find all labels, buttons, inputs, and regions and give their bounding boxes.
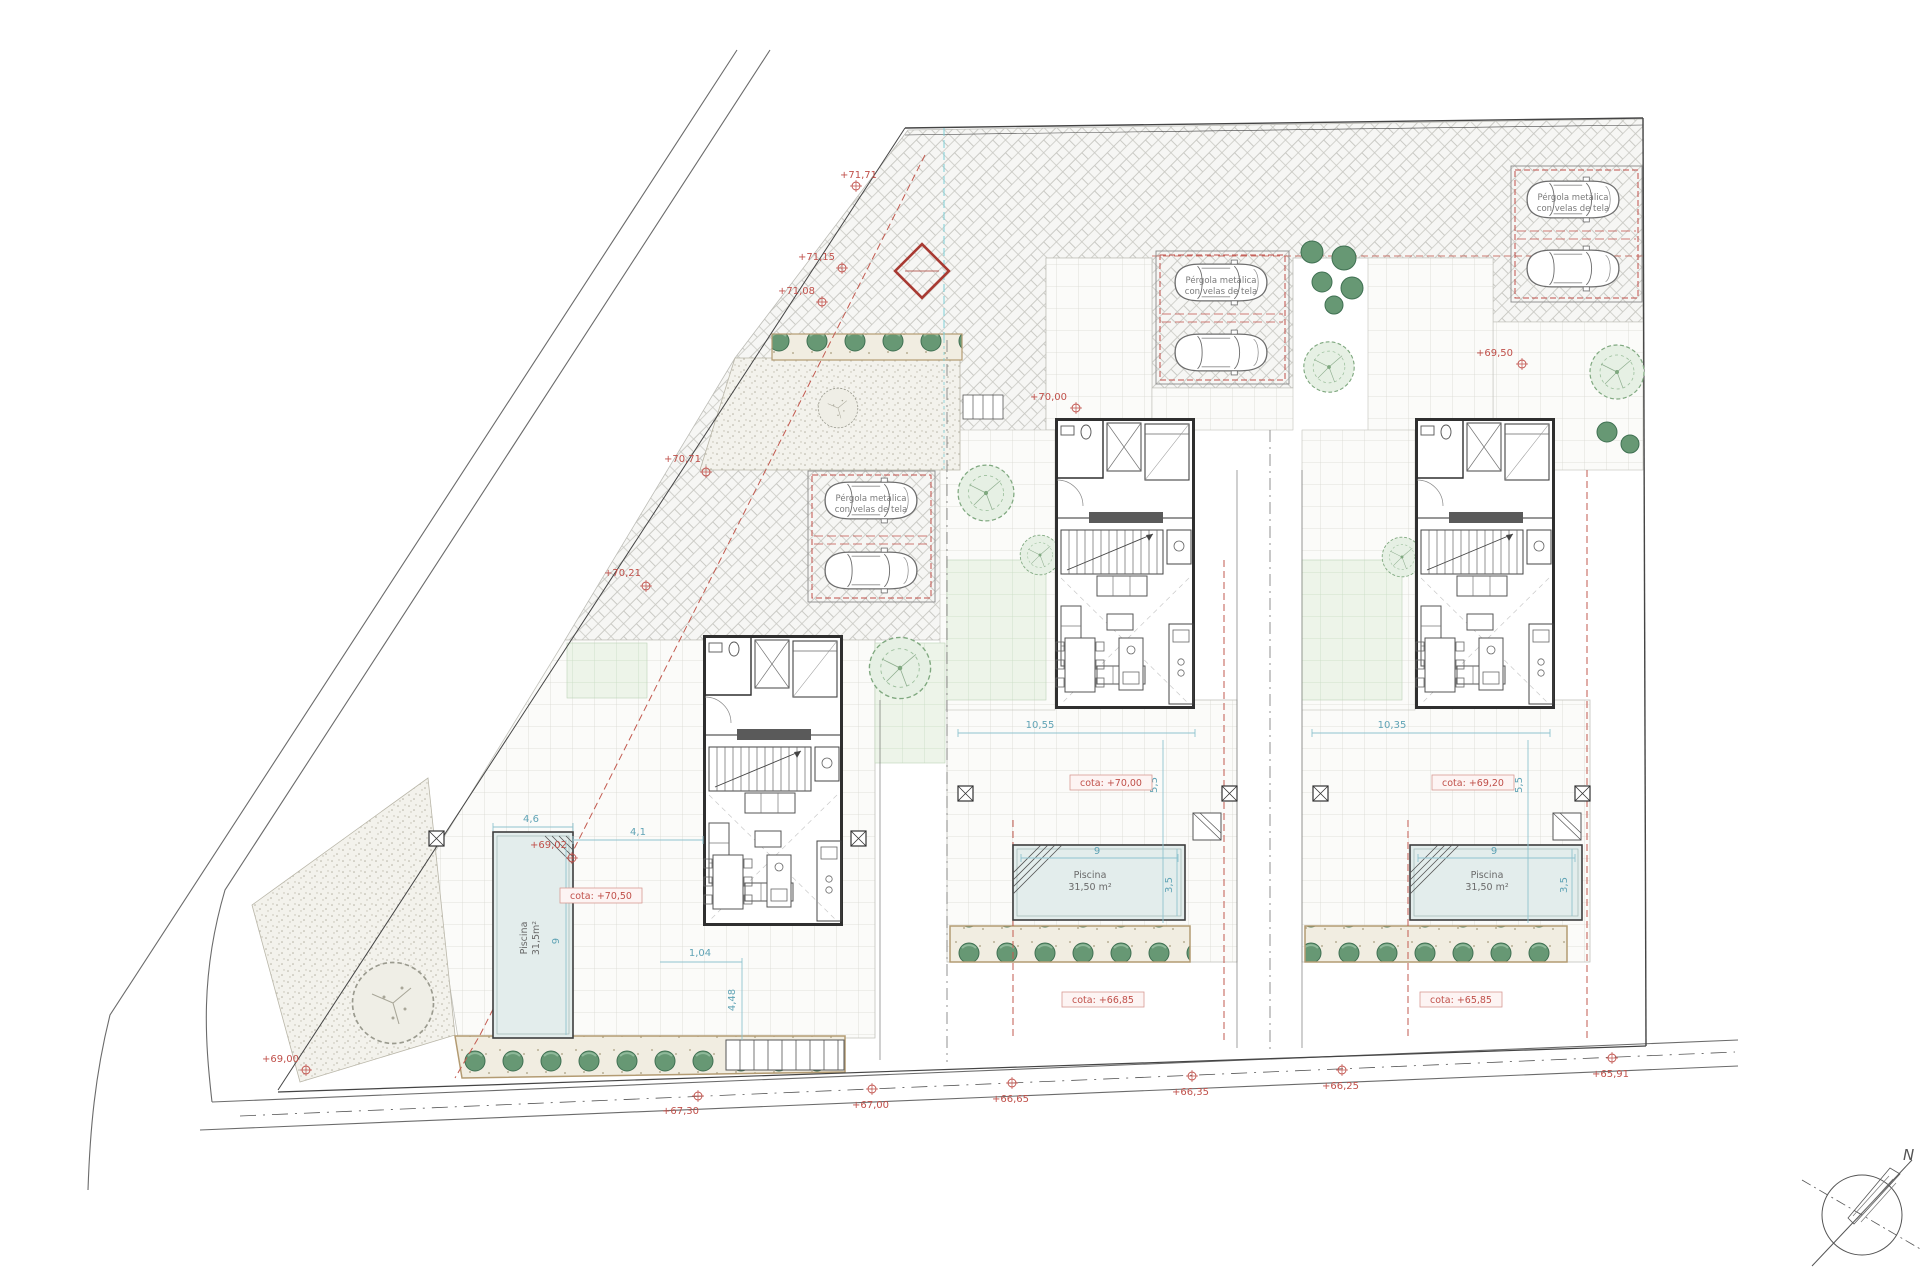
level-label: +67,00 — [852, 1100, 889, 1111]
cota-label: cota: +65,85 — [1430, 995, 1492, 1006]
level-label: +66,25 — [1322, 1081, 1359, 1092]
level-label: +70,21 — [604, 568, 641, 579]
tree — [1304, 342, 1354, 392]
level-label: +65,91 — [1592, 1069, 1629, 1080]
villa-middle — [1056, 420, 1194, 708]
site-plan-drawing: Pérgola metálica con velas de tela Pérgo… — [0, 0, 1920, 1280]
pool-label: Piscina — [1471, 870, 1504, 881]
level-label: +71,15 — [798, 252, 835, 263]
pergola-note: con velas de tela — [835, 505, 907, 515]
pool-left: Piscina 31,5m² — [493, 832, 573, 1038]
dim-label: 1,04 — [689, 948, 711, 959]
level-label: +69,00 — [262, 1054, 299, 1065]
compass-north-label: N — [1903, 1146, 1914, 1164]
pool-label: 31,50 m² — [1465, 882, 1508, 893]
dim-label: 9 — [1094, 846, 1100, 857]
tree — [1020, 535, 1060, 575]
site-plan-sheet: Pérgola metálica con velas de tela Pérgo… — [0, 0, 1920, 1280]
dim-label: 9 — [1491, 846, 1497, 857]
tree — [1590, 345, 1644, 399]
level-label: +69,02 — [530, 840, 567, 851]
pergola-note: con velas de tela — [1537, 204, 1609, 214]
tree — [869, 637, 930, 698]
dim-label: 3,5 — [1164, 877, 1175, 893]
dim-label: 4,48 — [727, 989, 738, 1011]
dim-label: 4,1 — [630, 827, 646, 838]
pool-label: Piscina — [519, 922, 530, 955]
tree — [818, 388, 858, 428]
level-label: +66,65 — [992, 1094, 1029, 1105]
villa-right — [1416, 420, 1554, 708]
pool-label: Piscina — [1074, 870, 1107, 881]
pergola-note: Pérgola metálica — [1186, 275, 1257, 286]
level-label: +71,08 — [778, 286, 815, 297]
pergola-note: con velas de tela — [1185, 287, 1257, 297]
cota-label: cota: +70,50 — [570, 891, 632, 902]
level-label: +70,00 — [1030, 392, 1067, 403]
level-label: +67,30 — [662, 1106, 699, 1117]
tree — [958, 465, 1014, 521]
level-label: +71,71 — [840, 170, 877, 181]
cota-label: cota: +70,00 — [1080, 778, 1142, 789]
dim-label: 5,5 — [1514, 777, 1525, 793]
villa-left — [704, 637, 842, 925]
dim-label: 10,35 — [1378, 720, 1407, 731]
dim-label: 9 — [551, 938, 562, 944]
dim-label: 3,5 — [1559, 877, 1570, 893]
car — [825, 548, 917, 593]
pergola-note: Pérgola metálica — [1538, 192, 1609, 203]
car — [1527, 246, 1619, 291]
level-label: +66,35 — [1172, 1087, 1209, 1098]
pergola-note: Pérgola metálica — [836, 493, 907, 504]
pool-label: 31,50 m² — [1068, 882, 1111, 893]
cota-label: cota: +69,20 — [1442, 778, 1504, 789]
pool-label: 31,5m² — [531, 921, 542, 955]
level-label: +69,50 — [1476, 348, 1513, 359]
dim-label: 10,55 — [1026, 720, 1055, 731]
cota-label: cota: +66,85 — [1072, 995, 1134, 1006]
tree — [353, 963, 434, 1044]
dim-label: 4,6 — [523, 814, 539, 825]
level-label: +70,71 — [664, 454, 701, 465]
car — [1175, 330, 1267, 375]
